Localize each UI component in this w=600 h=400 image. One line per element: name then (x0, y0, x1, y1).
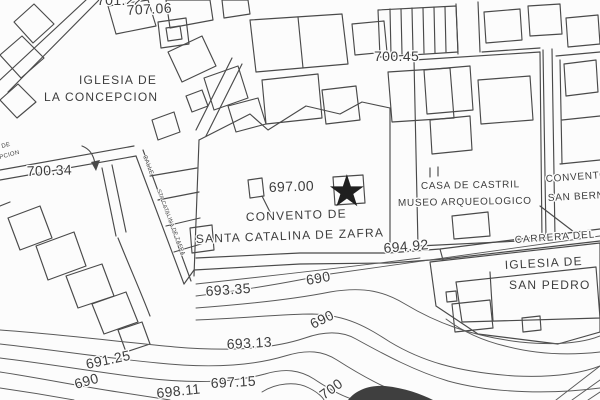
contour-label-690: 690 (307, 307, 336, 332)
contour-label-690: 690 (305, 268, 332, 288)
label-street-calle: CALLE (141, 155, 154, 176)
cadastral-map: ★ 701.22 707.06 IGLESIA DE LA CONCEPCION… (0, 0, 600, 400)
benchmark-arrow (82, 146, 100, 171)
elevation-label: 693.13 (226, 334, 272, 352)
elevation-label: 698.11 (156, 380, 202, 400)
label-convento-zafra-line1: CONVENTO DE (246, 206, 347, 224)
block-southwest-buildings (0, 202, 150, 352)
label-convento-zafra-line2: SANTA CATALINA DE ZAFRA (196, 225, 385, 246)
label-iglesia-san-pedro-line2: SAN PEDRO (509, 278, 590, 292)
elevation-label: 707.06 (126, 0, 172, 18)
block-san-bernardo (540, 49, 600, 238)
label-edge-fragment-2: PCION (0, 150, 20, 161)
label-convento-san-bernardo-line2: SAN BERN (548, 190, 600, 204)
elevation-label: 694.92 (383, 236, 429, 256)
label-iglesia-concepcion-line1: IGLESIA DE (79, 73, 157, 87)
block-north-strip-parcels (378, 6, 458, 122)
elevation-label: 700.34 (27, 161, 73, 179)
label-street-carrera-del: CARRERA DEL (514, 229, 595, 246)
block-northeast-buildings (456, 2, 600, 54)
elevation-label: 693.35 (205, 280, 251, 299)
elevation-label: 700.45 (374, 48, 419, 64)
elevation-label: 697.00 (269, 177, 315, 195)
map-canvas: ★ 701.22 707.06 IGLESIA DE LA CONCEPCION… (0, 0, 600, 400)
label-casa-castril-line2: MUSEO ARQUEOLOGICO (398, 196, 532, 209)
elevation-label: 691.25 (84, 347, 132, 372)
label-iglesia-concepcion-line2: LA CONCEPCION (44, 90, 158, 104)
block-casa-castril (414, 52, 542, 246)
contour-label-700: 700 (316, 375, 345, 400)
riverbank-shading (348, 386, 433, 400)
elevation-label: 697.15 (210, 373, 256, 391)
label-casa-castril-line1: CASA DE CASTRIL (421, 179, 520, 192)
label-edge-fragment-1: DE (1, 142, 11, 150)
